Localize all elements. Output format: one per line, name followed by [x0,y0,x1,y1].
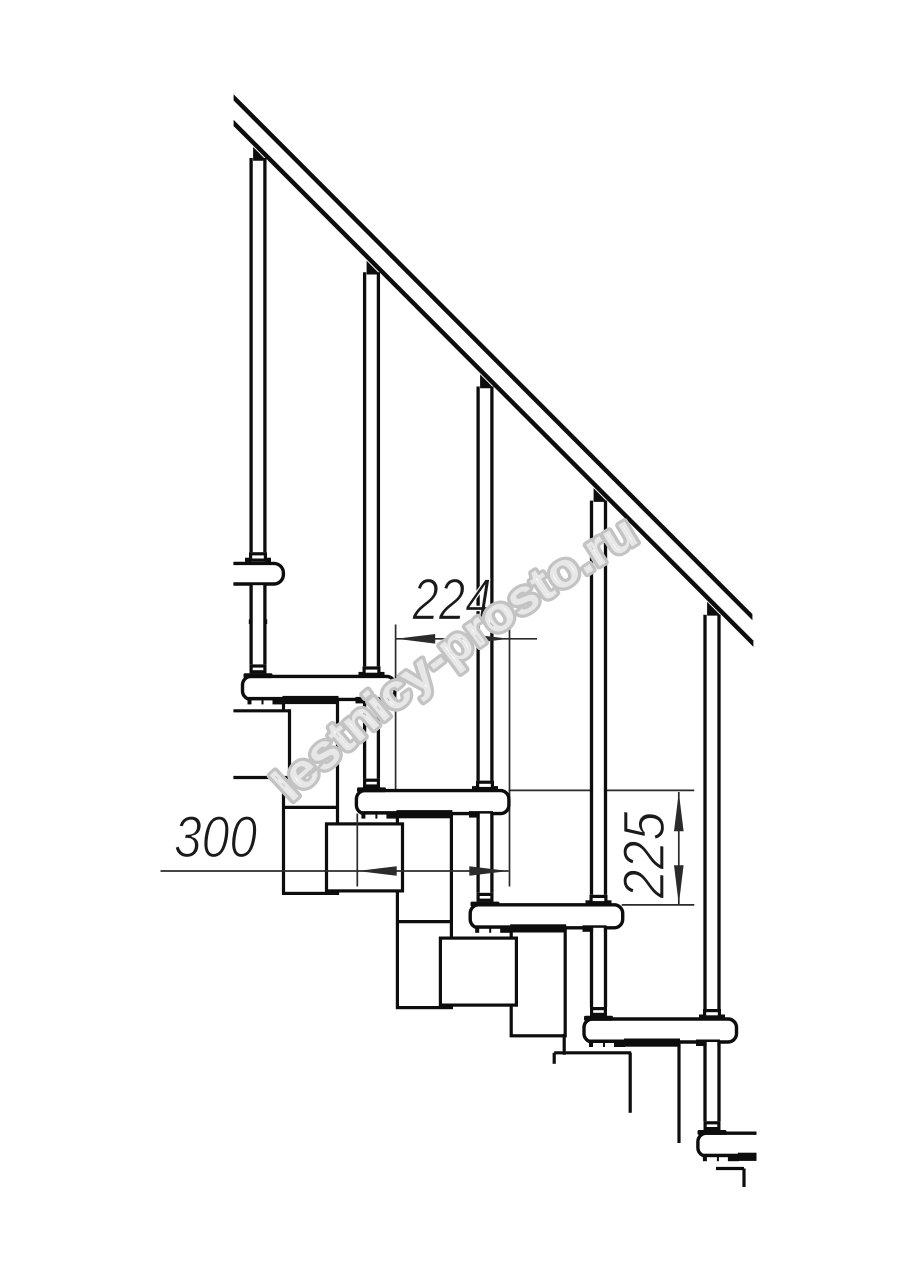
svg-text:225: 225 [611,811,676,899]
svg-text:300: 300 [174,806,257,870]
svg-text:lestnicy-prosto.ru: lestnicy-prosto.ru [262,505,646,811]
